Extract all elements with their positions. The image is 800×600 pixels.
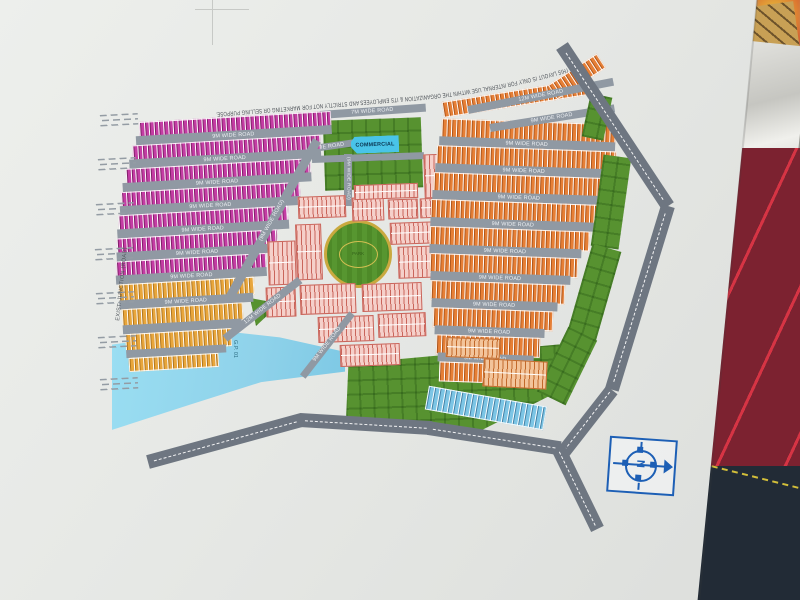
road-label: 9M WIDE ROAD [479, 275, 522, 282]
paper-edge-line [212, 0, 213, 45]
survey-dashes [100, 377, 139, 391]
compass-notch [622, 460, 628, 466]
plot-block [298, 195, 347, 219]
paper-sheet: THIS LAYOUT IS ONLY FOR INTERNAL USE WIT… [0, 0, 800, 600]
main-road [552, 445, 604, 532]
plot-block [378, 312, 427, 338]
plot-block [267, 241, 297, 286]
compass-north-letter: N [632, 455, 649, 472]
plot-block [482, 358, 547, 389]
road-label: 9M WIDE ROAD [498, 194, 541, 201]
road-label: 9M WIDE ROAD [468, 328, 511, 335]
survey-dashes [96, 291, 135, 305]
park-label: PARK [352, 251, 364, 256]
plot-block [388, 198, 419, 219]
compass-notch [635, 475, 641, 481]
north-arrow-icon [664, 460, 674, 475]
survey-dashes [100, 113, 139, 127]
plot-block [299, 283, 356, 315]
compass-notch [650, 462, 656, 468]
photo-of-layout-plan: { "map": { "disclaimer": "THIS LAYOUT IS… [0, 0, 800, 600]
main-road [146, 413, 304, 469]
park-circle: PARK [324, 220, 392, 288]
plot-block [354, 183, 418, 200]
paper-edge-line [195, 9, 249, 10]
road-label: 9M WIDE ROAD [506, 140, 549, 147]
plot-block [295, 224, 323, 281]
plot-block [446, 337, 501, 359]
compass: N [606, 436, 678, 497]
road-label: 9M WIDE ROAD [503, 167, 546, 174]
survey-dashes [96, 202, 135, 216]
plot-block [352, 196, 385, 221]
compass-tick [637, 483, 639, 490]
survey-dashes [98, 335, 137, 349]
road-label: 9M WIDE ROAD [484, 248, 527, 255]
survey-dashes [98, 157, 137, 171]
road-label: 9M WIDE ROAD [492, 221, 535, 228]
road-label: 9M WIDE ROAD [473, 301, 516, 308]
plot-block [340, 343, 401, 367]
plot-block [362, 282, 423, 312]
